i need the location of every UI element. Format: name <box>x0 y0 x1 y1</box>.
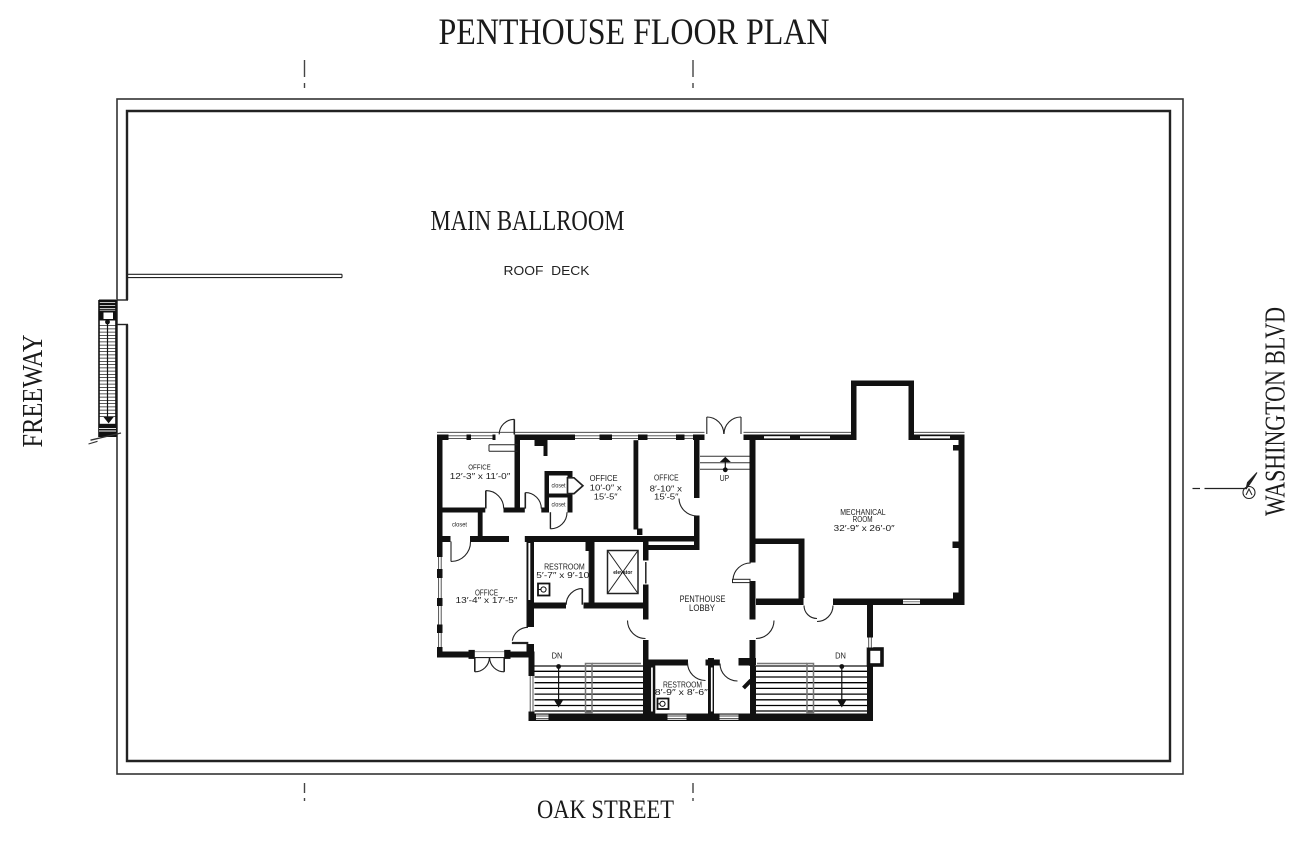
svg-text:closet: closet <box>552 501 566 508</box>
svg-text:13′-4″ x 17′-5″: 13′-4″ x 17′-5″ <box>456 595 518 605</box>
svg-text:elevator: elevator <box>613 570 632 576</box>
svg-text:15′-5″: 15′-5″ <box>594 491 618 501</box>
svg-text:PENTHOUSE FLOOR PLAN: PENTHOUSE FLOOR PLAN <box>439 12 830 53</box>
svg-text:FREEWAY: FREEWAY <box>17 334 49 447</box>
svg-text:5′-7″ x 9′-10: 5′-7″ x 9′-10 <box>536 570 589 580</box>
svg-text:8′-9″ x 8′-6″: 8′-9″ x 8′-6″ <box>655 687 708 697</box>
svg-text:DN: DN <box>552 651 563 660</box>
svg-text:OAK STREET: OAK STREET <box>537 795 674 824</box>
svg-text:OFFICE: OFFICE <box>468 462 491 471</box>
svg-text:closet: closet <box>452 521 467 528</box>
svg-text:WASHINGTON BLVD: WASHINGTON BLVD <box>1261 307 1292 516</box>
svg-text:32′-9″ x 26′-0″: 32′-9″ x 26′-0″ <box>834 523 895 533</box>
svg-text:LOBBY: LOBBY <box>689 603 715 613</box>
svg-text:closet: closet <box>552 483 566 490</box>
svg-text:OFFICE: OFFICE <box>654 473 679 483</box>
svg-text:ROOF DECK: ROOF DECK <box>504 263 590 278</box>
svg-text:UP: UP <box>720 474 730 483</box>
svg-text:12′-3″ x 11′-0″: 12′-3″ x 11′-0″ <box>450 471 511 481</box>
svg-text:OFFICE: OFFICE <box>590 473 618 483</box>
svg-text:15′-5″: 15′-5″ <box>654 491 679 501</box>
svg-text:MAIN BALLROOM: MAIN BALLROOM <box>431 206 625 237</box>
svg-text:DN: DN <box>835 651 846 660</box>
